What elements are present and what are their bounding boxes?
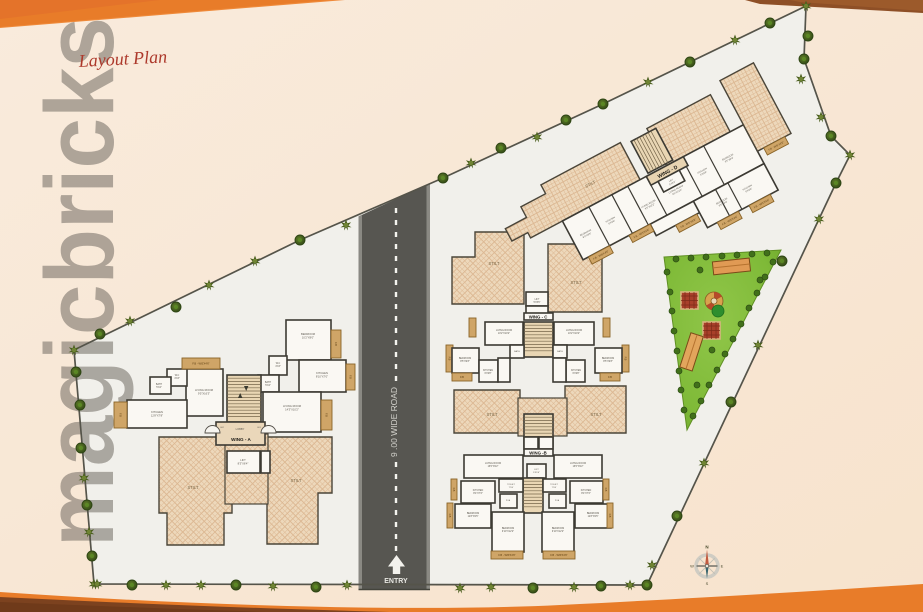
svg-text:F.B: F.B xyxy=(608,514,612,518)
svg-text:WING - A: WING - A xyxy=(231,437,251,442)
svg-text:F.B: F.B xyxy=(604,488,608,492)
svg-text:E: E xyxy=(721,564,724,569)
svg-text:BEDROOM9'10"X12'2": BEDROOM9'10"X12'2" xyxy=(552,527,564,533)
svg-text:BATH5'X4": BATH5'X4" xyxy=(265,381,271,387)
svg-text:F.B - W/5'X4'6": F.B - W/5'X4'6" xyxy=(550,553,567,557)
svg-text:POA: POA xyxy=(506,499,511,502)
svg-text:F.B: F.B xyxy=(452,488,456,492)
svg-text:BATH: BATH xyxy=(557,350,563,353)
svg-text:F.B: F.B xyxy=(334,342,338,346)
svg-text:W.C4'X3": W.C4'X3" xyxy=(174,374,180,380)
svg-text:F.B: F.B xyxy=(448,357,452,361)
svg-text:F.B: F.B xyxy=(624,357,628,361)
svg-text:F.B: F.B xyxy=(608,375,612,379)
svg-text:STILT: STILT xyxy=(187,485,199,490)
svg-text:F.B: F.B xyxy=(448,514,452,518)
svg-text:N: N xyxy=(705,545,708,550)
svg-text:KITCHEN8'4"X7'6": KITCHEN8'4"X7'6" xyxy=(581,489,592,495)
svg-text:KITCHEN12'8"X7'8": KITCHEN12'8"X7'8" xyxy=(151,410,163,417)
svg-text:WING - C: WING - C xyxy=(529,315,548,320)
svg-text:magicbricks: magicbricks xyxy=(25,17,134,547)
svg-text:WING -B: WING -B xyxy=(529,451,546,456)
svg-text:S: S xyxy=(706,581,709,586)
svg-text:F.B: F.B xyxy=(349,375,353,379)
svg-text:F.B - W/5'X4'6": F.B - W/5'X4'6" xyxy=(498,553,515,557)
svg-text:LIVING ROOM10'2"X10'2": LIVING ROOM10'2"X10'2" xyxy=(566,329,582,335)
svg-text:KITCHEN8'4"X7'6": KITCHEN8'4"X7'6" xyxy=(473,489,484,495)
svg-text:STILT: STILT xyxy=(290,478,302,483)
svg-text:LIVING ROOM10'2"X10'2": LIVING ROOM10'2"X10'2" xyxy=(496,329,512,335)
svg-text:W: W xyxy=(690,564,694,569)
svg-text:F.B: F.B xyxy=(119,413,123,417)
svg-text:KITCHEN8'10"X7'0": KITCHEN8'10"X7'0" xyxy=(316,371,328,378)
svg-text:LOBBY: LOBBY xyxy=(236,427,245,431)
svg-text:STILT: STILT xyxy=(488,261,500,266)
svg-text:9 .00 WIDE ROAD: 9 .00 WIDE ROAD xyxy=(389,387,399,457)
svg-text:BEDROOM8'5"X9'8": BEDROOM8'5"X9'8" xyxy=(602,357,614,363)
svg-text:STILT: STILT xyxy=(570,280,582,285)
svg-text:POA: POA xyxy=(555,499,560,502)
svg-text:BEDROOM10'2"X9'0": BEDROOM10'2"X9'0" xyxy=(301,332,316,339)
svg-text:STILT: STILT xyxy=(590,412,602,417)
svg-text:BEDROOM8'5"X9'8": BEDROOM8'5"X9'8" xyxy=(459,357,471,363)
svg-text:BATH5'X4": BATH5'X4" xyxy=(156,383,162,389)
svg-text:STILT: STILT xyxy=(486,412,498,417)
svg-text:W.C4'X3": W.C4'X3" xyxy=(275,362,281,368)
svg-text:F.B: F.B xyxy=(325,413,329,417)
svg-text:F.B: F.B xyxy=(460,375,464,379)
svg-text:BEDROOM12'8"X9'5": BEDROOM12'8"X9'5" xyxy=(467,512,479,518)
svg-text:BEDROOM12'8"X9'5": BEDROOM12'8"X9'5" xyxy=(587,512,599,518)
svg-text:BATH: BATH xyxy=(514,350,520,353)
svg-text:BEDROOM9'10"X12'2": BEDROOM9'10"X12'2" xyxy=(502,527,514,533)
svg-text:F.B - W/5'X4'6": F.B - W/5'X4'6" xyxy=(192,362,209,366)
